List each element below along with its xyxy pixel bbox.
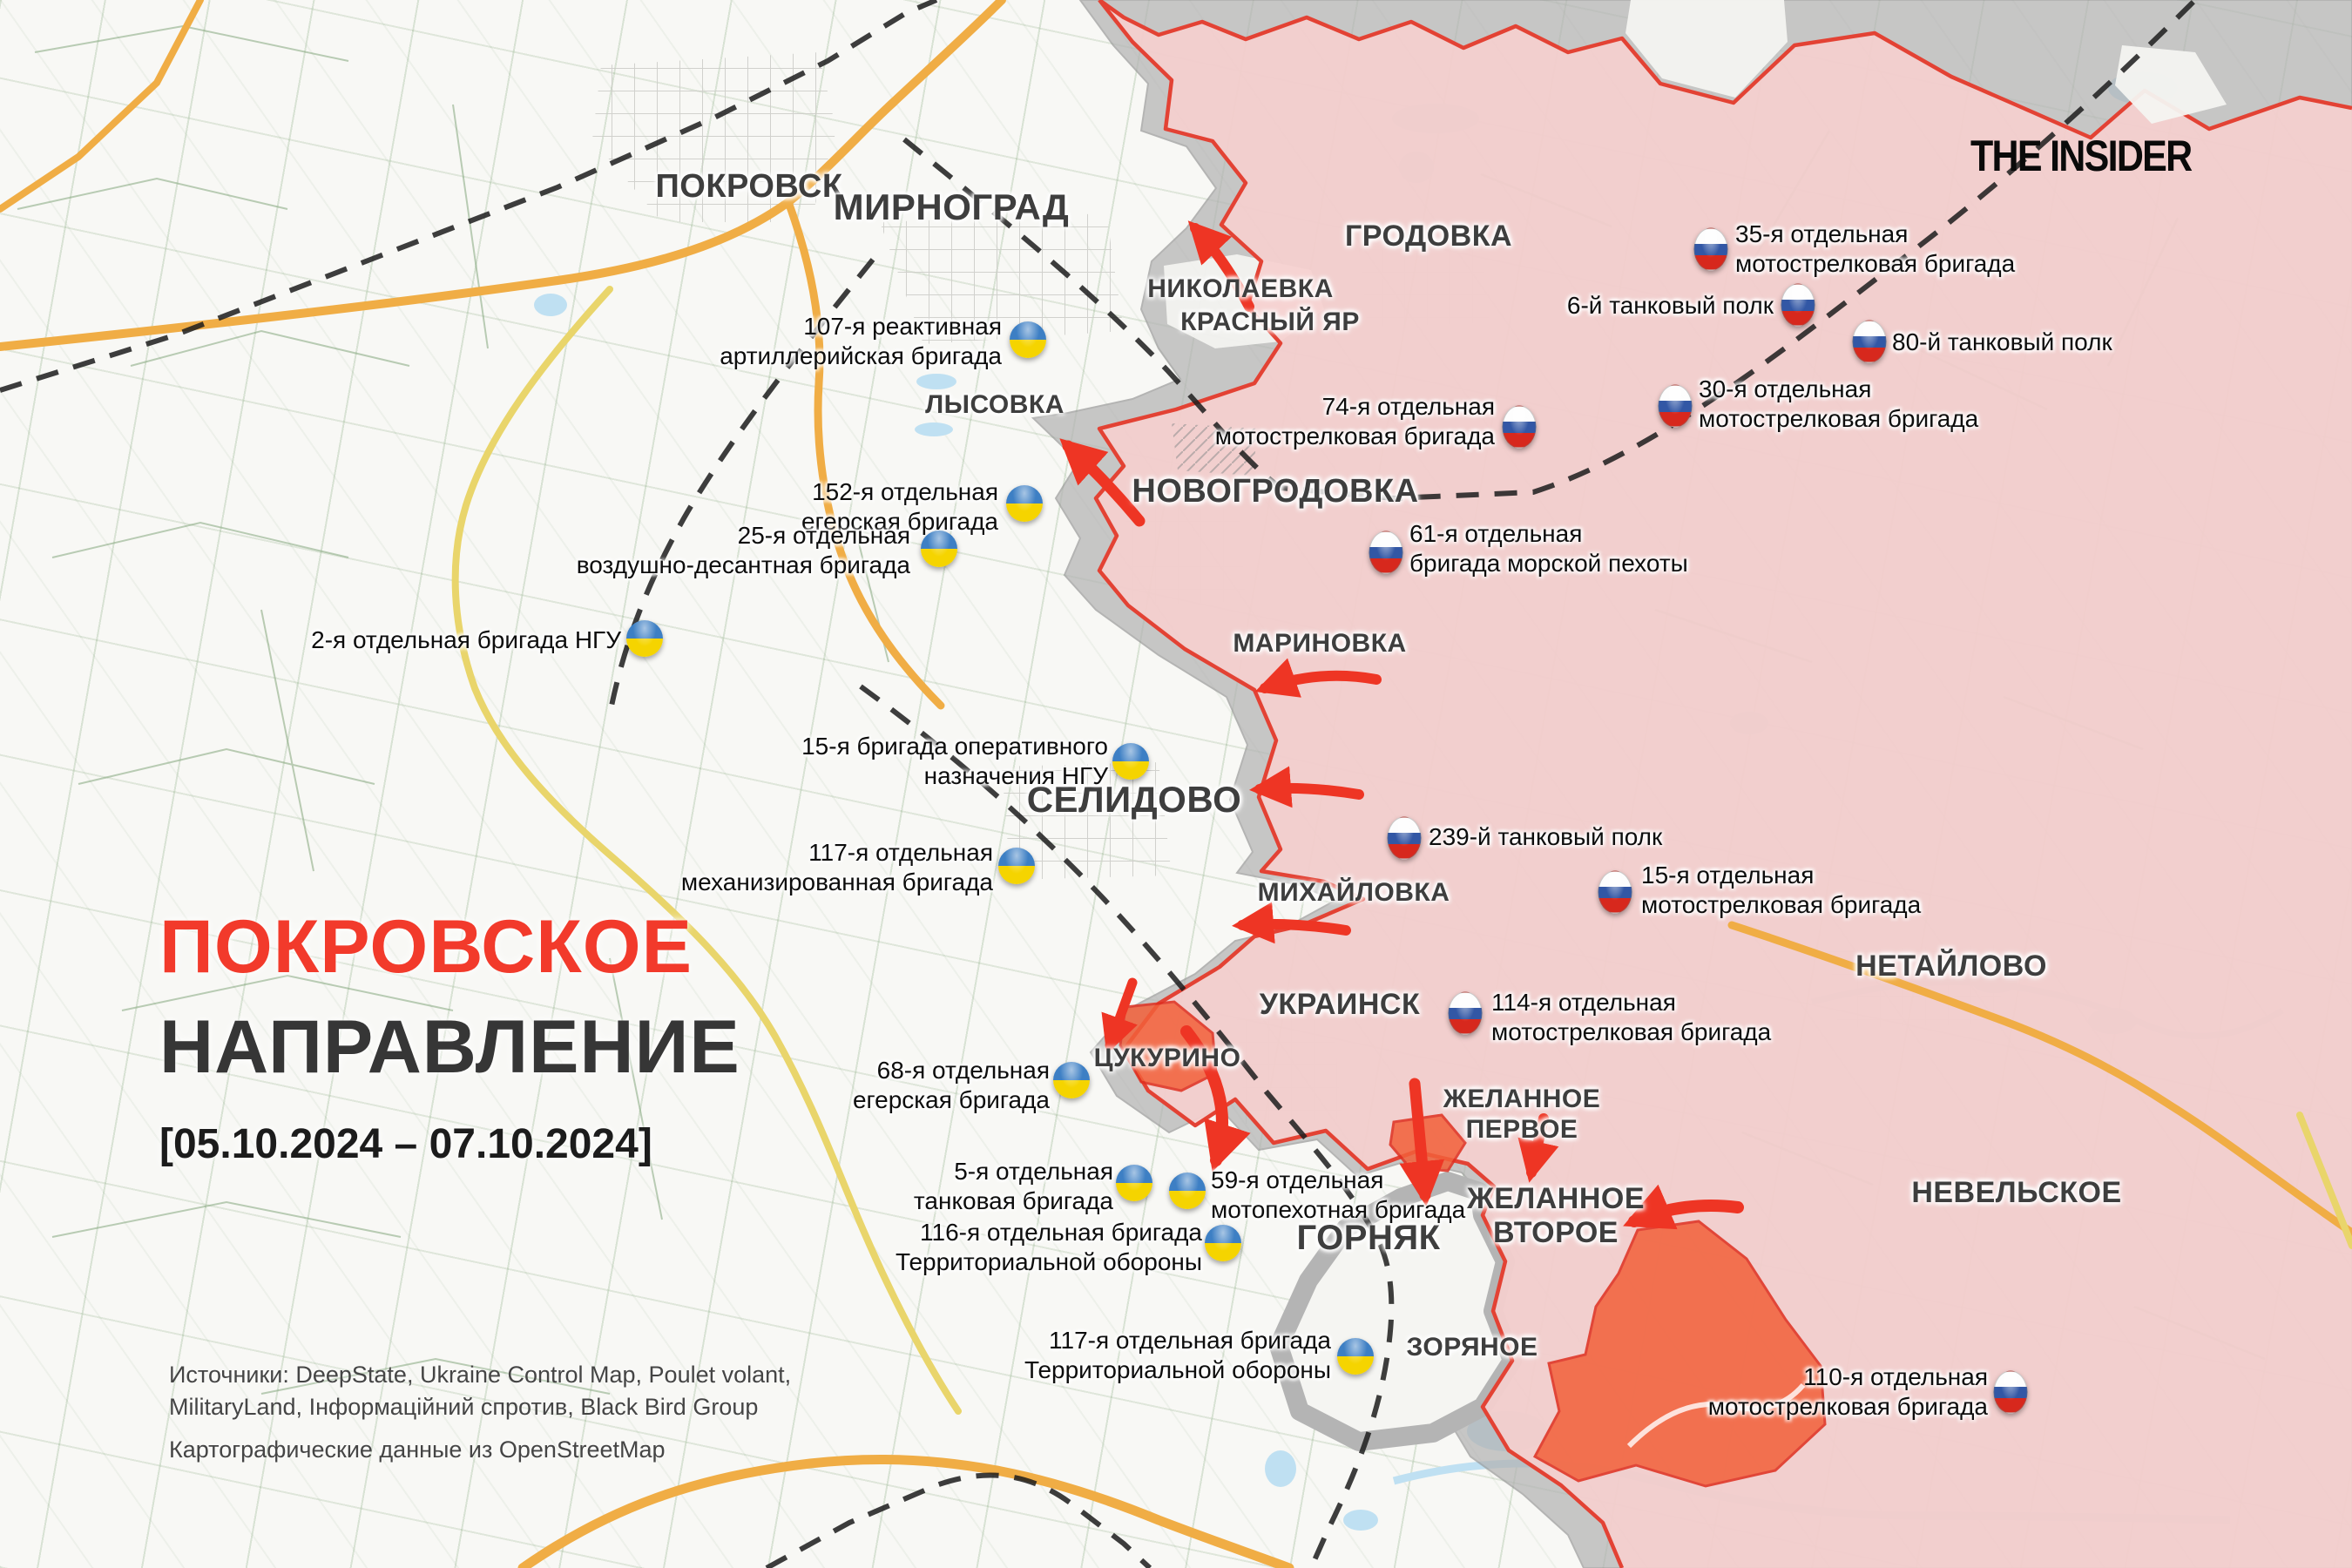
sources-line-2: MilitaryLand, Інформаційний спротив, Bla…	[169, 1391, 791, 1423]
label-line: ЦУКУРИНО	[1094, 1044, 1241, 1074]
map-infographic: ПОКРОВСКМИРНОГРАДНИКОЛАЕВКАКРАСНЫЙ ЯРГРО…	[0, 0, 2352, 1568]
sources-line-1: Источники: DeepState, Ukraine Control Ma…	[169, 1359, 791, 1391]
unit-label-ru-35-motorrifle: 35-я отдельнаямотострелковая бригада	[1735, 220, 2015, 279]
label-line: мотопехотная бригада	[1211, 1195, 1465, 1225]
label-line: 114-я отдельная	[1491, 988, 1771, 1017]
label-line: НЕВЕЛЬСКОЕ	[1911, 1176, 2121, 1210]
label-line: мотострелковая бригада	[1215, 422, 1495, 451]
unit-label-ua-68-jaeger: 68-я отдельнаяегерская бригада	[853, 1056, 1050, 1115]
label-line: 110-я отдельная	[1708, 1362, 1988, 1392]
unit-label-ua-5-tank: 5-я отдельнаятанковая бригада	[914, 1157, 1113, 1216]
label-line: 61-я отдельная	[1409, 519, 1688, 549]
city-label-netaylovo: НЕТАЙЛОВО	[1855, 950, 2047, 983]
city-label-pokrovsk: ПОКРОВСК	[655, 167, 842, 206]
city-label-zhelannoe-vtoroe: ЖЕЛАННОЕВТОРОЕ	[1467, 1182, 1645, 1251]
city-label-krasny-yar: КРАСНЫЙ ЯР	[1180, 308, 1360, 338]
city-label-grodovka: ГРОДОВКА	[1345, 220, 1512, 253]
unit-label-ua-59-motorized: 59-я отдельнаямотопехотная бригада	[1211, 1166, 1465, 1225]
unit-label-ua-25-air-assault: 25-я отдельнаявоздушно-десантная бригада	[577, 521, 910, 580]
ua-flag-icon	[626, 620, 663, 657]
label-line: Территориальной обороны	[896, 1247, 1202, 1277]
title-dates: [05.10.2024 – 07.10.2024]	[159, 1120, 740, 1168]
unit-label-ru-15-motorrifle: 15-я отдельнаямотострелковая бригада	[1641, 861, 1921, 920]
title-line-1: ПОКРОВСКОЕ	[159, 904, 740, 990]
ru-flag-icon	[1994, 1371, 2028, 1414]
attack-arrow	[1260, 788, 1359, 794]
city-label-zhelannoe-pervoe: ЖЕЛАННОЕПЕРВОЕ	[1443, 1085, 1601, 1146]
label-line: ПОКРОВСК	[655, 167, 842, 206]
label-line: бригада морской пехоты	[1409, 549, 1688, 578]
label-line: артиллерийская бригада	[720, 341, 1002, 371]
city-label-novogrodovka: НОВОГРОДОВКА	[1132, 472, 1418, 510]
label-line: 68-я отдельная	[853, 1056, 1050, 1085]
city-label-nevelskoe: НЕВЕЛЬСКОЕ	[1911, 1176, 2121, 1210]
label-line: 107-я реактивная	[720, 312, 1002, 341]
label-line: 117-я отдельная бригада	[1024, 1326, 1331, 1355]
label-line: 2-я отдельная бригада НГУ	[311, 625, 621, 655]
field-lines	[17, 26, 889, 1394]
sources-line-3: Картографические данные из OpenStreetMap	[169, 1434, 791, 1466]
ru-flag-icon	[1449, 992, 1483, 1035]
label-line: 15-я бригада оперативного	[801, 732, 1108, 761]
label-line: НИКОЛАЕВКА	[1147, 274, 1334, 305]
city-label-marinovka: МАРИНОВКА	[1233, 629, 1406, 659]
ru-flag-icon	[1781, 284, 1815, 327]
label-line: НОВОГРОДОВКА	[1132, 472, 1418, 510]
label-line: 74-я отдельная	[1215, 392, 1495, 422]
ua-flag-icon	[1112, 743, 1149, 780]
ru-flag-icon	[1853, 321, 1887, 363]
label-line: Территориальной обороны	[1024, 1355, 1331, 1385]
unit-label-ua-107-reactive-artillery: 107-я реактивнаяартиллерийская бригада	[720, 312, 1002, 371]
unit-label-ua-2-ngu: 2-я отдельная бригада НГУ	[311, 625, 621, 655]
label-line: егерская бригада	[853, 1085, 1050, 1115]
label-line: мотострелковая бригада	[1735, 249, 2015, 279]
ru-flag-icon	[1694, 228, 1728, 271]
label-line: воздушно-десантная бригада	[577, 551, 910, 580]
label-line: ЗОРЯНОЕ	[1406, 1333, 1538, 1363]
city-label-mirnograd: МИРНОГРАД	[834, 186, 1070, 229]
label-line: МИХАЙЛОВКА	[1258, 878, 1450, 909]
sources-note: Источники: DeepState, Ukraine Control Ma…	[169, 1359, 791, 1466]
label-line: ПЕРВОЕ	[1443, 1115, 1601, 1146]
the-insider-logo: THE INSIDER	[1970, 131, 2191, 181]
label-line: мотострелковая бригада	[1699, 404, 1978, 434]
unit-label-ru-6-tank: 6-й танковый полк	[1567, 291, 1774, 321]
unit-label-ru-61-marines: 61-я отдельнаябригада морской пехоты	[1409, 519, 1688, 578]
label-line: мотострелковая бригада	[1491, 1017, 1771, 1047]
label-line: НЕТАЙЛОВО	[1855, 950, 2047, 983]
city-label-zoryanoe: ЗОРЯНОЕ	[1406, 1333, 1538, 1363]
label-line: назначения НГУ	[801, 761, 1108, 791]
unit-label-ua-15-ngu: 15-я бригада оперативногоназначения НГУ	[801, 732, 1108, 791]
road-orange	[0, 0, 1002, 347]
unit-label-ua-117-tro: 117-я отдельная бригадаТерриториальной о…	[1024, 1326, 1331, 1385]
title-block: ПОКРОВСКОЕ НАПРАВЛЕНИЕ [05.10.2024 – 07.…	[159, 904, 740, 1168]
ua-flag-icon	[1010, 321, 1046, 358]
ru-flag-icon	[1503, 406, 1537, 449]
label-line: танковая бригада	[914, 1186, 1113, 1216]
ua-flag-icon	[998, 848, 1035, 884]
title-line-2: НАПРАВЛЕНИЕ	[159, 1004, 740, 1091]
unit-label-ru-74-motorrifle: 74-я отдельнаямотострелковая бригада	[1215, 392, 1495, 451]
label-line: 152-я отдельная	[801, 477, 998, 507]
unit-label-ru-239-tank: 239-й танковый полк	[1429, 822, 1662, 852]
ua-flag-icon	[1053, 1062, 1090, 1098]
label-line: 116-я отдельная бригада	[896, 1218, 1202, 1247]
label-line: 59-я отдельная	[1211, 1166, 1465, 1195]
label-line: КРАСНЫЙ ЯР	[1180, 308, 1360, 338]
label-line: ЖЕЛАННОЕ	[1467, 1182, 1645, 1216]
ru-flag-icon	[1388, 817, 1422, 860]
label-line: ЛЫСОВКА	[925, 390, 1064, 421]
city-label-tsukurino: ЦУКУРИНО	[1094, 1044, 1241, 1074]
ua-flag-icon	[1006, 485, 1043, 522]
label-line: МИРНОГРАД	[834, 186, 1070, 229]
label-line: 15-я отдельная	[1641, 861, 1921, 890]
ua-flag-icon	[1337, 1338, 1374, 1375]
ua-flag-icon	[1169, 1173, 1206, 1209]
ru-flag-icon	[1369, 531, 1403, 574]
city-label-lysovka: ЛЫСОВКА	[925, 390, 1064, 421]
label-line: МАРИНОВКА	[1233, 629, 1406, 659]
label-line: мотострелковая бригада	[1708, 1392, 1988, 1422]
label-line: 35-я отдельная	[1735, 220, 2015, 249]
unit-label-ru-30-motorrifle: 30-я отдельнаямотострелковая бригада	[1699, 375, 1978, 434]
ua-flag-icon	[1205, 1225, 1241, 1261]
ru-flag-icon	[1659, 385, 1693, 428]
label-line: ЖЕЛАННОЕ	[1443, 1085, 1601, 1115]
label-line: мотострелковая бригада	[1641, 890, 1921, 920]
label-line: 5-я отдельная	[914, 1157, 1113, 1186]
label-line: 25-я отдельная	[577, 521, 910, 551]
attack-arrow	[1242, 924, 1346, 930]
label-line: 239-й танковый полк	[1429, 822, 1662, 852]
ua-flag-icon	[1116, 1165, 1152, 1201]
label-line: механизированная бригада	[681, 868, 993, 897]
unit-label-ru-110-motorrifle: 110-я отдельнаямотострелковая бригада	[1708, 1362, 1988, 1422]
road-orange	[0, 0, 200, 209]
road-orange	[523, 1459, 1289, 1568]
label-line: 117-я отдельная	[681, 838, 993, 868]
label-line: УКРАИНСК	[1260, 988, 1420, 1022]
label-line: 30-я отдельная	[1699, 375, 1978, 404]
unit-label-ua-117-mech: 117-я отдельнаямеханизированная бригада	[681, 838, 993, 897]
city-label-nikolaevka: НИКОЛАЕВКА	[1147, 274, 1334, 305]
label-line: 80-й танковый полк	[1892, 328, 2112, 357]
unit-label-ru-114-motorrifle: 114-я отдельнаямотострелковая бригада	[1491, 988, 1771, 1047]
unit-label-ru-80-tank: 80-й танковый полк	[1892, 328, 2112, 357]
city-label-mikhaylovka: МИХАЙЛОВКА	[1258, 878, 1450, 909]
label-line: ВТОРОЕ	[1467, 1216, 1645, 1250]
ua-flag-icon	[921, 531, 957, 567]
ru-flag-icon	[1598, 871, 1632, 914]
label-line: ГРОДОВКА	[1345, 220, 1512, 253]
city-label-ukrainsk: УКРАИНСК	[1260, 988, 1420, 1022]
unit-label-ua-116-tro: 116-я отдельная бригадаТерриториальной о…	[896, 1218, 1202, 1277]
label-line: 6-й танковый полк	[1567, 291, 1774, 321]
